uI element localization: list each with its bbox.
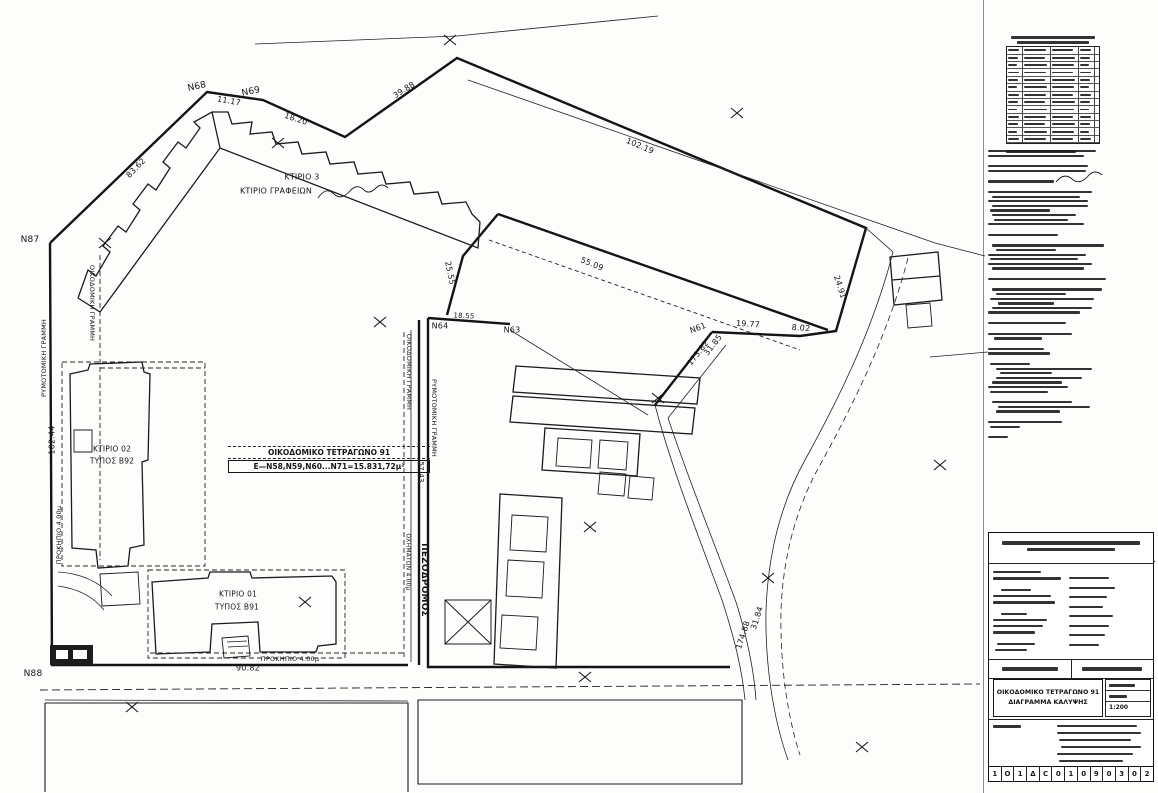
note-text-line — [988, 348, 1044, 350]
plan-label-dim-55-09: 55.09 — [579, 255, 605, 272]
code-cell: Δ — [1027, 767, 1040, 781]
drawing-title-line1: ΟΙΚΟΔΟΜΙΚΟ ΤΕΤΡΑΓΩΝΟ 91 — [997, 688, 1100, 698]
note-text-line — [992, 381, 1062, 383]
note-text-line — [992, 196, 1080, 198]
plan-label-dim-19-77: 19.77 — [736, 319, 760, 330]
plan-label-dim-174-88: 174.88 — [734, 620, 752, 651]
coord-table-title — [1011, 36, 1095, 39]
plan-label-dim-83-62: 83.62 — [124, 156, 147, 179]
plan-label-dim-39-88: 39.88 — [391, 80, 416, 100]
plan-label-point-n88: Ν88 — [24, 669, 43, 679]
note-text-line — [998, 406, 1090, 408]
note-text-line — [988, 155, 1084, 157]
plan-label-layer: Ν87Ν68Ν69Ν88Ν64Ν63Ν6183.6211.1718.2039.8… — [0, 0, 1158, 793]
plan-label-ktirio02-name: ΚΤΙΡΙΟ 02 — [93, 445, 131, 454]
coordinates-table — [1006, 36, 1100, 153]
coord-table-row — [1007, 114, 1099, 121]
title-block-notes — [989, 719, 1153, 770]
note-text-line — [990, 209, 1050, 211]
note-text-line — [994, 337, 1042, 339]
survey-notes — [988, 150, 1116, 441]
plan-label-prokipio-bottom: ΠΡΟΚΗΠΙΟ 4.00μ — [261, 655, 319, 663]
plan-label-oximaton: ΟΧΗΜΑΤΩΝ 4.00μ — [405, 533, 412, 590]
note-text-line — [996, 410, 1060, 412]
note-text-line — [990, 298, 1094, 300]
coord-table-row — [1007, 106, 1099, 113]
plan-label-dim-102-19: 102.19 — [625, 136, 655, 156]
plan-label-ktirio01-name: ΚΤΙΡΙΟ 01 — [219, 590, 257, 599]
note-text-line — [988, 170, 1086, 172]
note-text-line — [988, 322, 1066, 324]
note-text-line — [988, 278, 1106, 280]
coord-table-row — [1007, 136, 1099, 143]
coord-table-row — [1007, 128, 1099, 135]
title-block-cells — [989, 659, 1153, 679]
plan-label-oikodomiki-left: ΟΙΚΟΔΟΜΙΚΗ ΓΡΑΜΜΗ — [88, 265, 96, 341]
note-text-line — [998, 302, 1054, 304]
block-area-value: Ε—Ν58,Ν59,Ν60...Ν71=15.831,72μ² — [228, 460, 430, 473]
note-text-line — [992, 307, 1092, 309]
drawing-title-box: ΟΙΚΟΔΟΜΙΚΟ ΤΕΤΡΑΓΩΝΟ 91 ΔΙΑΓΡΑΜΜΑ ΚΑΛΥΨΗ… — [993, 679, 1103, 717]
scale-value: 1:200 — [1109, 704, 1128, 711]
note-text-line — [988, 254, 1086, 256]
plan-label-dim-25-55: 25.55 — [443, 260, 457, 285]
note-text-line — [988, 200, 1088, 202]
note-text-line — [988, 311, 1080, 313]
code-cell: Ο — [1002, 767, 1015, 781]
coord-table-grid — [1006, 46, 1100, 144]
plan-label-point-n63: Ν63 — [504, 326, 521, 335]
note-text-line — [992, 205, 1088, 207]
note-text-line — [988, 165, 1088, 167]
code-cell: 0 — [1103, 767, 1116, 781]
note-text-line — [988, 421, 1062, 423]
note-text-line — [996, 249, 1056, 251]
plan-label-dim-8-02: 8.02 — [791, 323, 810, 333]
plan-label-point-n68: Ν68 — [187, 80, 207, 94]
note-text-line — [992, 267, 1084, 269]
title-block-header — [989, 533, 1153, 564]
coord-table-row — [1007, 47, 1099, 54]
note-text-line — [988, 386, 1068, 388]
coord-table-row — [1007, 55, 1099, 62]
code-cell: 1 — [989, 767, 1002, 781]
plan-label-rymotomiki-left: ΡΥΜΟΤΟΜΙΚΗ ΓΡΑΜΜΗ — [40, 319, 48, 397]
plan-label-ktirio01-type: ΤΥΠΟΣ Β91 — [215, 603, 259, 612]
coord-table-row — [1007, 121, 1099, 128]
plan-label-dim-31-84: 31.84 — [749, 605, 765, 631]
note-text-line — [996, 368, 1092, 370]
block-title: ΟΙΚΟΔΟΜΙΚΟ ΤΕΤΡΑΓΩΝΟ 91 — [228, 446, 430, 459]
plan-label-prokipio-left: ΠΡΟΚΗΠΙΟ 4.00μ — [55, 506, 63, 564]
coord-table-row — [1007, 77, 1099, 84]
title-block: ΟΙΚΟΔΟΜΙΚΟ ΤΕΤΡΑΓΩΝΟ 91 ΔΙΑΓΡΑΜΜΑ ΚΑΛΥΨΗ… — [988, 532, 1154, 782]
note-text-line — [988, 436, 1008, 438]
coord-table-row — [1007, 99, 1099, 106]
note-text-line — [994, 219, 1068, 221]
note-text-line — [990, 426, 1020, 428]
note-text-line — [988, 223, 1084, 225]
plan-label-dim-18-55: 18.55 — [453, 311, 474, 320]
plan-label-point-n87: Ν87 — [21, 235, 40, 245]
coord-table-row — [1007, 69, 1099, 76]
note-text-line — [990, 363, 1030, 365]
plan-label-ktirio02-type: ΤΥΠΟΣ Β92 — [90, 457, 134, 466]
code-cell: 2 — [1141, 767, 1153, 781]
drawing-code-strip: 1Ο1ΔC01090302 — [989, 766, 1153, 781]
coord-table-row — [1007, 92, 1099, 99]
note-text-line — [988, 150, 1096, 152]
plan-label-point-n69: Ν69 — [241, 85, 261, 99]
drawing-title-line2: ΔΙΑΓΡΑΜΜΑ ΚΑΛΥΨΗΣ — [1008, 698, 1087, 708]
note-text-line — [988, 263, 1092, 265]
note-text-line — [992, 288, 1102, 290]
note-text-line — [996, 293, 1066, 295]
note-text-line — [988, 180, 1054, 182]
plan-label-pezodromos: ΠΕΖΟΔΡΟΜΟΣ — [419, 543, 429, 617]
plan-label-point-n64: Ν64 — [432, 322, 449, 331]
note-text-line — [990, 391, 1048, 393]
note-text-line — [990, 258, 1078, 260]
note-text-line — [992, 401, 1072, 403]
plan-label-dim-102-44: 102.44 — [48, 425, 57, 454]
coord-table-subtitle — [1017, 41, 1089, 44]
note-text-line — [988, 234, 1058, 236]
note-text-line — [988, 333, 1072, 335]
coord-table-row — [1007, 84, 1099, 91]
plan-label-dim-11-17: 11.17 — [216, 94, 241, 107]
plan-label-ktirio3-type: ΚΤΙΡΙΟ ΓΡΑΦΕΙΩΝ — [240, 187, 312, 196]
block-area-label: ΟΙΚΟΔΟΜΙΚΟ ΤΕΤΡΑΓΩΝΟ 91 Ε—Ν58,Ν59,Ν60...… — [228, 446, 430, 473]
code-cell: 3 — [1116, 767, 1129, 781]
plan-label-dim-90-82: 90.82 — [236, 664, 260, 673]
plan-label-ktirio3-name: ΚΤΙΡΙΟ 3 — [284, 173, 319, 182]
plan-label-rymotomiki-mid: ΡΥΜΟΤΟΜΙΚΗ ΓΡΑΜΜΗ — [430, 379, 438, 457]
plan-label-dim-18-20: 18.20 — [283, 111, 309, 127]
note-text-line — [988, 191, 1092, 193]
note-text-line — [992, 214, 1076, 216]
code-cell: 0 — [1052, 767, 1065, 781]
plan-label-dim-24-91: 24.91 — [832, 274, 848, 300]
plan-label-point-n61: Ν61 — [689, 321, 708, 335]
note-text-line — [996, 377, 1082, 379]
code-cell: 1 — [1014, 767, 1027, 781]
code-cell: 1 — [1065, 767, 1078, 781]
code-cell: C — [1040, 767, 1053, 781]
note-text-line — [992, 244, 1104, 246]
scale-cells: 1:200 — [1105, 679, 1151, 717]
note-text-line — [1000, 372, 1052, 374]
note-text-line — [988, 352, 1050, 354]
code-cell: 9 — [1091, 767, 1104, 781]
site-plan-sheet: Ν87Ν68Ν69Ν88Ν64Ν63Ν6183.6211.1718.2039.8… — [0, 0, 1158, 793]
coord-table-row — [1007, 62, 1099, 69]
code-cell: 0 — [1078, 767, 1091, 781]
plan-label-oikodomiki-mid: ΟΙΚΟΔΟΜΙΚΗ ΓΡΑΜΜΗ — [405, 334, 413, 410]
code-cell: 0 — [1129, 767, 1142, 781]
